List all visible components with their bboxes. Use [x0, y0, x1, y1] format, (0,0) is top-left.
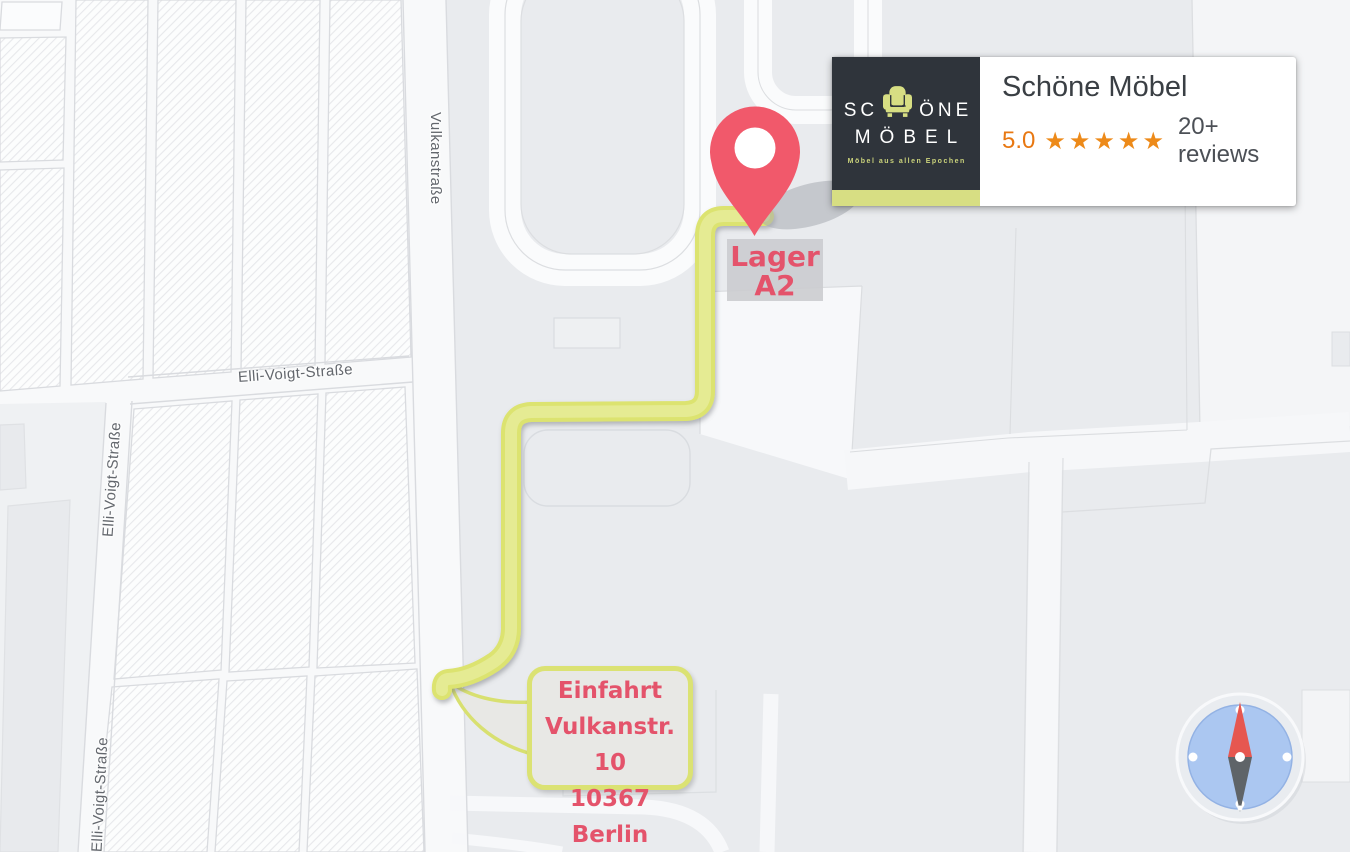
logo-dark-panel: SC ÖNE MÖB	[832, 57, 980, 190]
entrance-line3: 10367 Berlin	[532, 781, 688, 852]
entrance-line2: Vulkanstr. 10	[532, 709, 688, 781]
logo-wordmark-line1: SC ÖNE	[840, 83, 973, 122]
logo-tagline: Möbel aus allen Epochen	[846, 158, 966, 165]
entrance-bubble: Einfahrt Vulkanstr. 10 10367 Berlin	[527, 666, 693, 790]
logo-text-after: ÖNE	[915, 100, 972, 122]
destination-label-line2: A2	[727, 271, 823, 300]
business-info: Schöne Möbel 5.0 ★★★★★ 20+ reviews	[980, 57, 1296, 206]
destination-label-line1: Lager	[727, 242, 823, 271]
company-logo: SC ÖNE MÖB	[832, 57, 980, 206]
map-screenshot: Vulkanstraße Elli-Voigt-Straße Elli-Voig…	[0, 0, 1350, 852]
logo-text-before: SC	[840, 100, 878, 122]
logo-accent-bar	[832, 190, 980, 206]
reviews-count[interactable]: 20+ reviews	[1178, 113, 1296, 169]
destination-label: Lager A2	[727, 239, 823, 301]
business-name: Schöne Möbel	[1002, 71, 1296, 104]
rating-stars-icon: ★★★★★	[1044, 127, 1167, 155]
rating-score: 5.0	[1002, 127, 1035, 155]
business-card: SC ÖNE MÖB	[832, 57, 1296, 206]
entrance-line1: Einfahrt	[532, 673, 688, 709]
street-label-vulkanstrasse: Vulkanstraße	[427, 112, 444, 205]
armchair-icon	[879, 85, 912, 124]
logo-wordmark-line2: MÖBEL	[846, 127, 967, 149]
rating-row[interactable]: 5.0 ★★★★★ 20+ reviews	[1002, 113, 1296, 169]
